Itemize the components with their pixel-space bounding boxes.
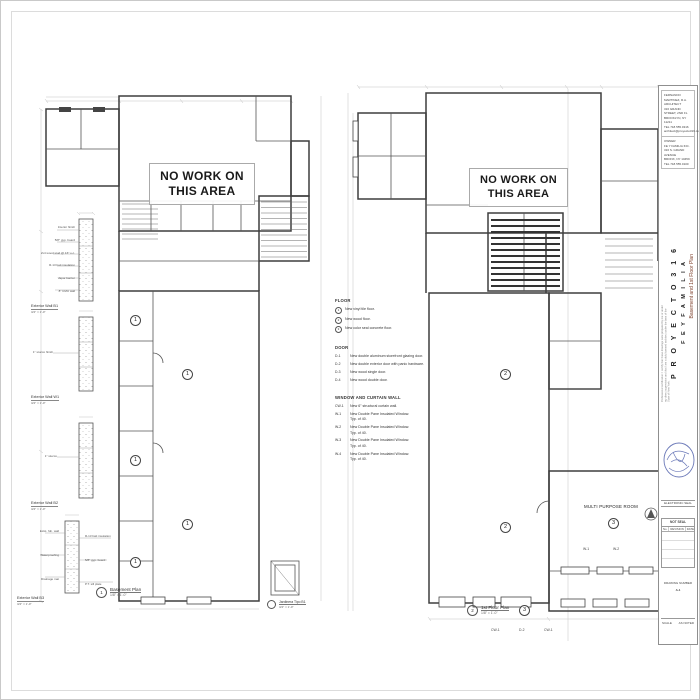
legend-item: W-1New Double Pane Insulated Window.Typ.… bbox=[335, 412, 429, 423]
owner-info-block: OWNER FE Y FAMILIA INC. 316 S. GRAND AVE… bbox=[661, 136, 695, 169]
architect-line: 316 GRAND STREET, 2ND FL bbox=[664, 107, 692, 116]
project-name: P R O Y E C T O 3 1 6 bbox=[670, 246, 681, 379]
architect-seal-stamp bbox=[661, 434, 697, 490]
detail-note: R-13 batt insulation bbox=[85, 534, 133, 538]
scale-value: AS NOTED bbox=[679, 621, 694, 626]
jardinera-detail-title: Jardinera Tipo B1 3/4" = 1'-0" bbox=[267, 600, 306, 609]
detail-note: R-13 batt insulation bbox=[23, 263, 75, 267]
keynote-2: 2 bbox=[500, 369, 511, 380]
plan-title-bubble: 1 bbox=[96, 587, 107, 598]
legend-door-title: DOOR bbox=[335, 345, 429, 351]
legend-item: W-2New Double Pane Insulated Window.Typ.… bbox=[335, 425, 429, 436]
detail-note: 1" stucco finish bbox=[31, 350, 53, 354]
plan-title-bubble: 2 bbox=[467, 605, 478, 616]
title-block: FERNANDO MARTINEZ, R.A. ARCHITECT 316 GR… bbox=[658, 85, 698, 645]
keynote-code: W-1 bbox=[335, 412, 347, 417]
tag-cw1: CW-1 bbox=[491, 628, 500, 632]
revision-table-header: NOT SEAL bbox=[662, 519, 694, 527]
wall-detail-4-notes-left: Exist. fdn. wall Waterproofing Drainage … bbox=[15, 529, 59, 581]
wall-detail-2-notes: 1" stucco finish bbox=[31, 350, 53, 354]
col-date: DATE bbox=[686, 527, 695, 531]
legend-item: 3New color seal concrete floor. bbox=[335, 326, 429, 333]
keynote-code: W-2 bbox=[335, 425, 347, 430]
legend-item: D-2New double exterior door with panic h… bbox=[335, 362, 429, 367]
wall-detail-2-title: Exterior Wall W1 3/4" = 1'-0" bbox=[31, 395, 59, 405]
basement-plan-title: 1 Basement Plan 1/8" = 1'-0" bbox=[96, 587, 141, 598]
revision-row bbox=[662, 532, 694, 541]
legend-item: W-3New Double Pane Insulated Window.Typ.… bbox=[335, 438, 429, 449]
keynote-code: 1 bbox=[335, 307, 342, 314]
detail-note: 5/8" gyp. board bbox=[85, 558, 133, 562]
keynote-code: D-3 bbox=[335, 370, 347, 375]
legend-floor-title: FLOOR bbox=[335, 298, 429, 304]
jardinera-detail bbox=[271, 561, 299, 595]
no-work-note-basement: NO WORK ON THIS AREA bbox=[149, 163, 255, 205]
revision-row bbox=[662, 541, 694, 550]
legend-item: 1New vinyl tile floor. bbox=[335, 307, 429, 314]
north-arrow-icon bbox=[645, 508, 657, 520]
first-floor-plan-title: 2 1st Floor Plan 1/8" = 1'-0" bbox=[467, 605, 509, 616]
keynote-text: New color seal concrete floor. bbox=[345, 326, 392, 331]
keynote-code: D-2 bbox=[335, 362, 347, 367]
owner-line: TEL 718.555.0100 bbox=[664, 162, 692, 167]
architect-line: BROOKLYN, NY 11211 bbox=[664, 116, 692, 125]
tag-w2: W-2 bbox=[613, 547, 619, 551]
owner-line: 316 S. GRAND AVENUE bbox=[664, 148, 692, 157]
keynote-text: New wood single door. bbox=[350, 370, 386, 375]
keynote-text: New double aluminum storefront glazing d… bbox=[350, 354, 423, 359]
keynote-text: New wood floor. bbox=[345, 317, 371, 322]
keynote-code: D-4 bbox=[335, 378, 347, 383]
keynote-3: 3 bbox=[519, 605, 530, 616]
detail-title-bubble bbox=[267, 600, 276, 609]
detail-note: Drainage mat bbox=[15, 577, 59, 581]
wall-detail-3-notes: 1" stucco bbox=[39, 454, 57, 458]
detail-note: 1" stucco bbox=[39, 454, 57, 458]
scale-bar: SCALE AS NOTED bbox=[661, 618, 695, 626]
keynote-1: 1 bbox=[130, 455, 141, 466]
keynote-text: New wood double door. bbox=[350, 378, 388, 383]
keynote-1: 1 bbox=[182, 519, 193, 530]
legend-item: D-3New wood single door. bbox=[335, 370, 429, 375]
keynote-1: 1 bbox=[130, 315, 141, 326]
sheet-title: Basement and 1st Floor Plan bbox=[689, 254, 697, 318]
tag-d2: D-2 bbox=[519, 628, 524, 632]
detail-note: 8" CMU wall bbox=[23, 289, 75, 293]
architect-line: architect@proyecto316.com bbox=[664, 129, 692, 134]
drawing-number-label: DRAWING NUMBER bbox=[661, 581, 695, 586]
owner-line: BRONX, NY 10459 bbox=[664, 157, 692, 162]
keynote-text: New Double Pane Insulated Window.Typ. of… bbox=[350, 452, 409, 463]
revision-row bbox=[662, 550, 694, 559]
detail-note: Interior finish bbox=[23, 225, 75, 229]
no-work-line1: NO WORK ON bbox=[480, 174, 557, 188]
no-work-line2: THIS AREA bbox=[169, 184, 236, 199]
keynote-text: New double exterior door with panic hard… bbox=[350, 362, 424, 367]
keynote-code: 2 bbox=[335, 317, 342, 324]
keynote-text: New Double Pane Insulated Window.Typ. of… bbox=[350, 438, 409, 449]
wall-detail-1-title: Exterior Wall B1 3/4" = 1'-0" bbox=[31, 304, 58, 314]
wall-detail-4-title: Exterior Wall B3 3/4" = 1'-0" bbox=[17, 596, 44, 606]
scale-label: SCALE bbox=[662, 621, 672, 626]
no-work-line2: THIS AREA bbox=[488, 188, 550, 202]
detail-note: 2x4 wood stud @ 16" o.c. bbox=[23, 251, 75, 255]
detail-note: 5/8" gyp. board bbox=[23, 238, 75, 242]
architect-name: FERNANDO MARTINEZ, R.A. bbox=[664, 93, 692, 102]
keynote-text: New vinyl tile floor. bbox=[345, 307, 375, 312]
legend-item: D-4New wood double door. bbox=[335, 378, 429, 383]
client-name: F E Y F A M I L I A bbox=[680, 260, 688, 344]
certification-note: Professional certification: I certify th… bbox=[661, 302, 670, 402]
keynote-code: 3 bbox=[335, 326, 342, 333]
electronic-seal-bar: ELECTRONIC SEAL bbox=[661, 500, 695, 507]
detail-note: Vapor barrier bbox=[23, 276, 75, 280]
stair-hatch-left bbox=[122, 202, 653, 288]
room-label-multi-purpose: MULTI PURPOSE ROOM bbox=[579, 504, 643, 509]
drawing-number: A-1 bbox=[661, 588, 695, 593]
architect-info-block: FERNANDO MARTINEZ, R.A. ARCHITECT 316 GR… bbox=[661, 90, 695, 137]
wall-detail-1-notes: Interior finish 5/8" gyp. board 2x4 wood… bbox=[23, 225, 75, 293]
legend-item: CW-1New 6" structural curtain wall. bbox=[335, 404, 429, 409]
wall-detail-3-title: Exterior Wall B2 3/4" = 1'-0" bbox=[31, 501, 58, 511]
legend-window-title: WINDOW AND CURTAIN WALL bbox=[335, 395, 429, 401]
revision-table: NOT SEAL No. REVISION DATE bbox=[661, 518, 695, 568]
wall-detail-4-notes-right: R-13 batt insulation 5/8" gyp. board P.T… bbox=[85, 534, 133, 586]
keynote-2: 2 bbox=[500, 522, 511, 533]
col-no: No. bbox=[662, 527, 669, 531]
keynote-text: New Double Pane Insulated Window.Typ. of… bbox=[350, 425, 409, 436]
project-title-block: Professional certification: I certify th… bbox=[661, 246, 695, 426]
keynote-legend: FLOOR 1New vinyl tile floor. 2New wood f… bbox=[335, 298, 429, 465]
tag-w1: W-1 bbox=[583, 547, 589, 551]
no-work-line1: NO WORK ON bbox=[160, 169, 244, 184]
keynote-1: 1 bbox=[182, 369, 193, 380]
keynote-code: W-4 bbox=[335, 452, 347, 457]
revision-row bbox=[662, 559, 694, 567]
legend-item: D-1New double aluminum storefront glazin… bbox=[335, 354, 429, 359]
legend-item: W-4New Double Pane Insulated Window.Typ.… bbox=[335, 452, 429, 463]
no-work-note-first-floor: NO WORK ON THIS AREA bbox=[469, 168, 568, 207]
detail-note: Exist. fdn. wall bbox=[15, 529, 59, 533]
col-revision: REVISION bbox=[669, 527, 685, 531]
legend-item: 2New wood floor. bbox=[335, 317, 429, 324]
stair-steps-right bbox=[491, 220, 560, 286]
keynote-code: D-1 bbox=[335, 354, 347, 359]
keynote-3: 3 bbox=[608, 518, 619, 529]
keynote-code: W-3 bbox=[335, 438, 347, 443]
keynote-code: CW-1 bbox=[335, 404, 347, 409]
keynote-text: New Double Pane Insulated Window.Typ. of… bbox=[350, 412, 409, 423]
keynote-text: New 6" structural curtain wall. bbox=[350, 404, 397, 409]
seal-area bbox=[661, 434, 695, 496]
drawing-sheet: NO WORK ON THIS AREA NO WORK ON THIS ARE… bbox=[0, 0, 700, 700]
detail-note: Waterproofing bbox=[15, 553, 59, 557]
tag-cw1: CW-1 bbox=[544, 628, 553, 632]
detail-note: P.T. sill plate bbox=[85, 582, 133, 586]
